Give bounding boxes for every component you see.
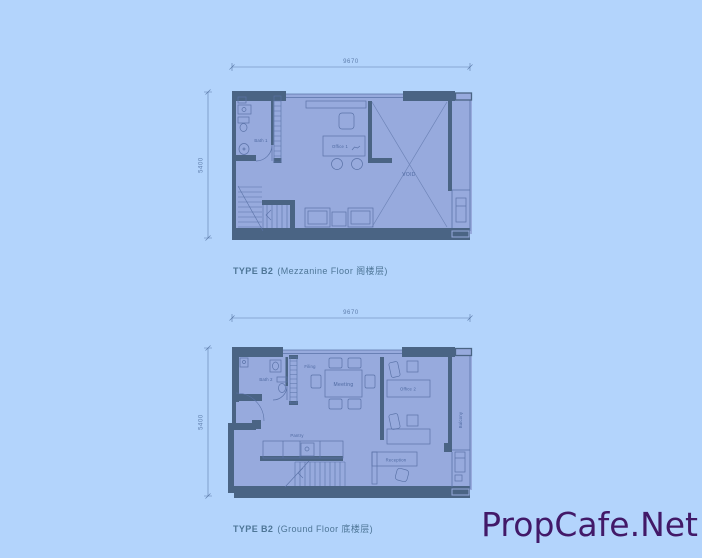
floorplan-page: 9670 5400 [0,0,702,558]
ground-plan: 9670 5400 [199,310,473,499]
ground-title-floor: (Ground Floor 底楼层) [277,524,373,534]
room-label-filing: Filing [304,364,316,369]
floorplan-graphic: 9670 5400 [0,0,702,558]
room-label-balcony: Balcony [458,411,463,428]
ground-dimension-left [204,346,212,499]
room-label-pantry: Pantry [290,433,304,438]
mezzanine-title-floor: (Mezzanine Floor 阁楼层) [277,266,387,276]
room-label-void: VOID [402,172,416,178]
mezzanine-title: TYPE B2(Mezzanine Floor 阁楼层) [233,264,388,277]
ground-dim-top-label: 9670 [343,310,359,316]
room-label-meeting: Meeting [334,382,354,388]
mezzanine-window-topright [456,93,472,100]
room-label-office1: Office 1 [332,144,348,149]
mezzanine-title-type: TYPE B2 [233,266,273,276]
ground-dim-left-label: 5400 [199,414,205,430]
room-label-office2: Office 2 [400,387,416,392]
room-label-reception: Reception [386,458,407,463]
mezzanine-dim-left-label: 5400 [199,157,205,173]
ground-window-topright [456,349,472,356]
mezzanine-dimension-left [204,90,212,241]
ground-title-type: TYPE B2 [233,524,273,534]
room-label-bath1: Bath 1 [254,138,268,143]
mezzanine-dim-top-label: 9670 [343,59,359,65]
mezzanine-floor-area [234,94,472,234]
mezzanine-plan: 9670 5400 [199,59,473,241]
ground-title: TYPE B2(Ground Floor 底楼层) [233,522,373,535]
watermark-propcafe: PropCafe.Net [481,505,698,545]
room-label-bath2: Bath 2 [259,377,273,382]
